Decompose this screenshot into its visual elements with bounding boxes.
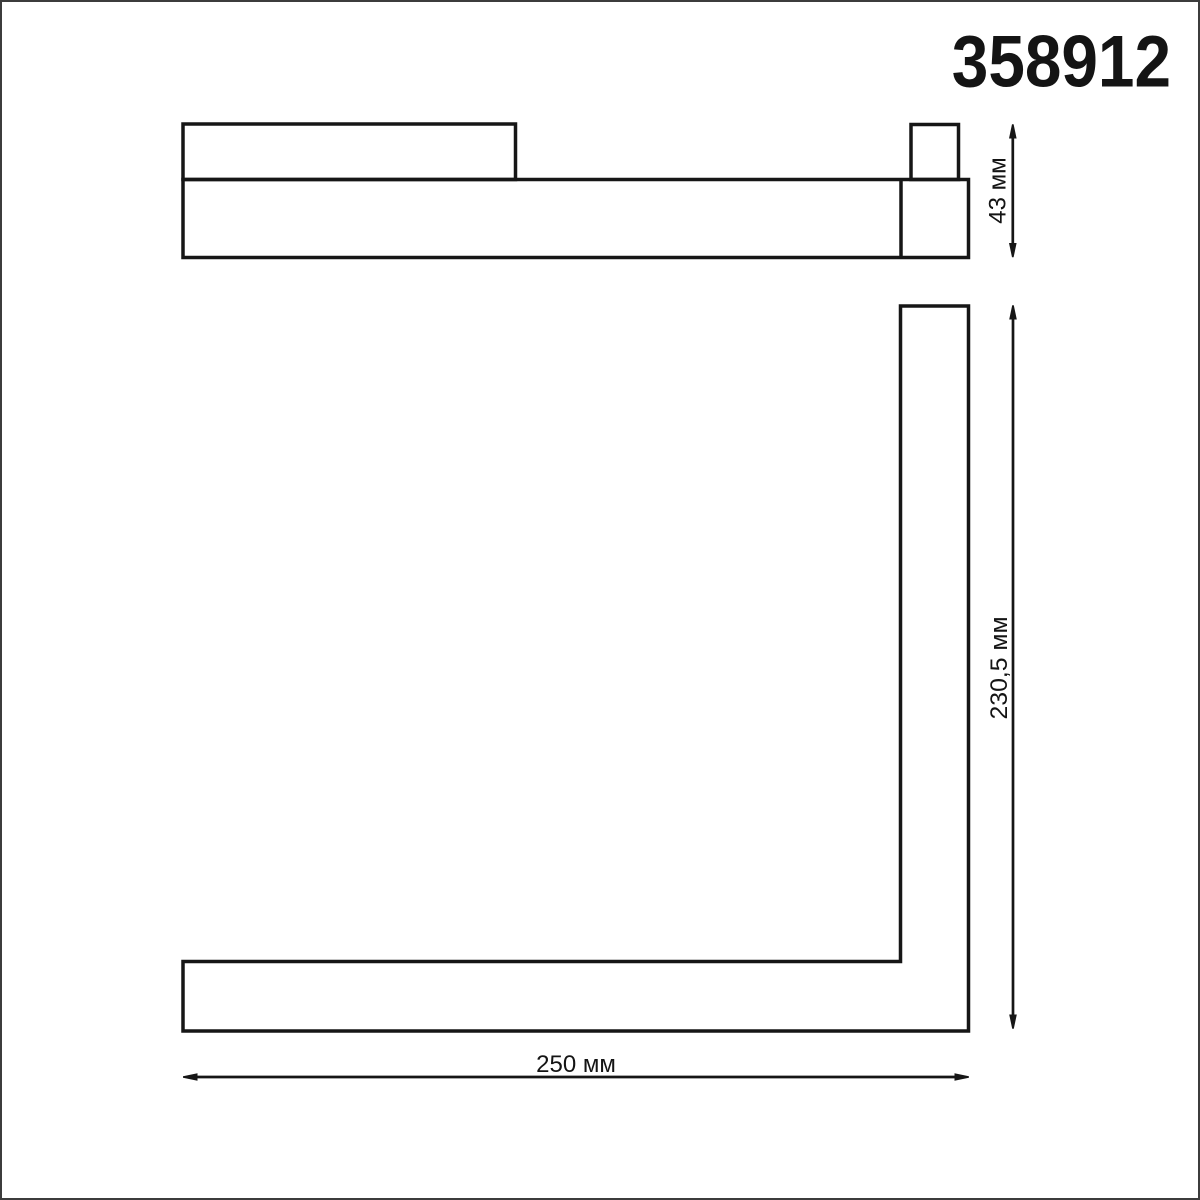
svg-text:358912: 358912 [952, 20, 1171, 102]
svg-text:230,5 мм: 230,5 мм [986, 617, 1013, 720]
svg-text:43 мм: 43 мм [985, 157, 1012, 223]
svg-text:250 мм: 250 мм [536, 1051, 616, 1078]
